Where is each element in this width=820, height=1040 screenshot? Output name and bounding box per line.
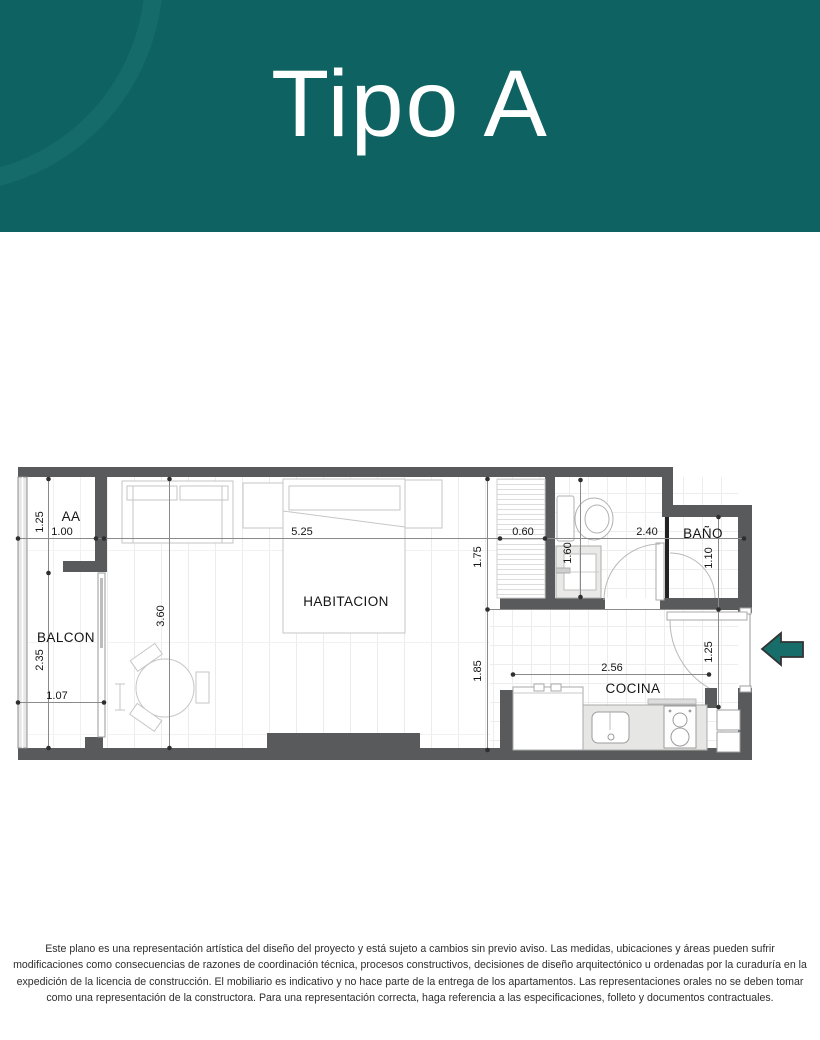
dim-aa-width: 1.00 xyxy=(51,526,72,538)
toilet xyxy=(557,496,613,541)
floor-plan-svg: 1.00 5.25 0.60 2.40 2.56 1.07 1.25 2.35 … xyxy=(0,0,820,1040)
dim-hab-width: 5.25 xyxy=(291,526,312,538)
room-label-aa: AA xyxy=(62,509,81,524)
dim-kitchen-depth: 1.85 xyxy=(472,660,484,681)
dim-entry-height: 1.25 xyxy=(703,641,715,662)
disclaimer-text: Este plano es una representación artísti… xyxy=(12,941,808,1007)
room-label-balcon: BALCON xyxy=(37,630,95,645)
dim-hab-vertical: 3.60 xyxy=(155,605,167,626)
fridge xyxy=(513,684,583,750)
dim-balcon-door: 1.07 xyxy=(46,690,67,702)
floor-plan-page: Tipo A xyxy=(0,0,820,1040)
dim-kitchen-width: 2.56 xyxy=(601,662,622,674)
dim-nook-height: 1.10 xyxy=(703,547,715,568)
nightstand xyxy=(405,480,442,528)
dim-aa-height: 1.25 xyxy=(34,511,46,532)
sofa xyxy=(122,481,233,543)
dim-closet-width: 0.60 xyxy=(512,526,533,538)
dim-bath-side: 1.60 xyxy=(562,542,574,563)
side-table xyxy=(243,483,283,528)
dim-bath-width: 2.40 xyxy=(636,526,657,538)
room-label-habitacion: HABITACION xyxy=(303,594,389,609)
kitchen-counter xyxy=(583,699,707,750)
dim-balcon-height: 2.35 xyxy=(34,649,46,670)
room-label-bano: BAÑO xyxy=(683,526,723,541)
entry-arrow-icon xyxy=(762,633,803,665)
bed xyxy=(283,479,405,633)
dim-bath-depth: 1.75 xyxy=(472,546,484,567)
room-label-cocina: COCINA xyxy=(606,681,661,696)
